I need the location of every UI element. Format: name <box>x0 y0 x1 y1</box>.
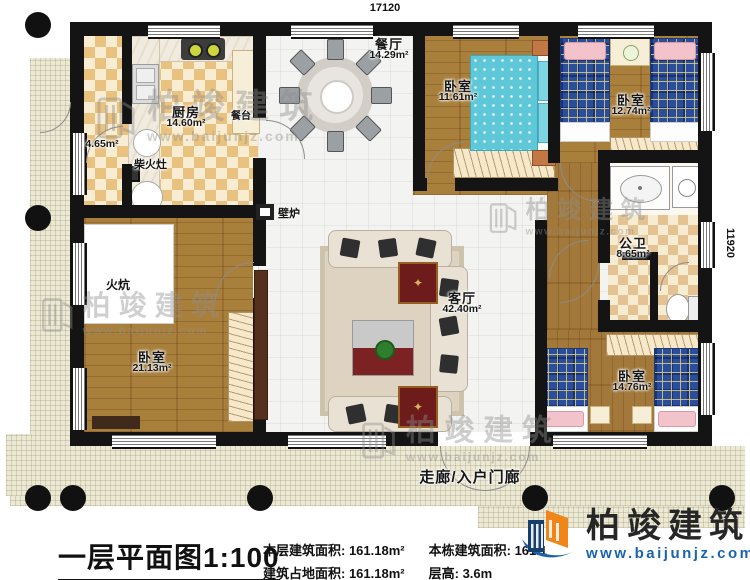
wall <box>455 178 558 191</box>
room-area-bedroom4: 14.76m² <box>612 381 651 393</box>
plan-title: 一层平面图1:100 <box>58 536 280 580</box>
label-kang: 火炕 <box>106 276 130 293</box>
dimension-top: 17120 <box>370 2 401 14</box>
window <box>71 243 87 305</box>
company-website: www.baijunjz.com <box>586 545 750 562</box>
wall <box>548 36 560 163</box>
column <box>247 485 273 511</box>
bed-pillow <box>658 411 696 427</box>
wall <box>598 150 712 163</box>
window <box>553 433 647 449</box>
label-firewood-stove: 柴火灶 <box>134 156 167 172</box>
wall <box>650 252 658 332</box>
floor-plan-canvas: 17120 11920 <box>0 0 750 580</box>
bed-pillow <box>564 42 606 60</box>
room-area-bedroom2: 12.74m² <box>611 105 650 117</box>
window <box>288 433 386 449</box>
fireplace-icon <box>256 204 274 220</box>
room-area-dining: 14.29m² <box>369 49 408 61</box>
double-bed <box>470 55 538 151</box>
stove-stool <box>133 129 161 157</box>
porch-step-left <box>6 434 32 496</box>
label-corridor: 走廊/入户门廊 <box>419 466 520 487</box>
dimension-right: 11920 <box>724 228 736 258</box>
room-area-bedroom1: 11.61m² <box>439 91 478 103</box>
label-serving-counter: 餐台 <box>231 107 251 122</box>
dining-chair <box>371 87 392 104</box>
stat-floor-area: 本层建筑面积: 161.18m² <box>263 540 405 559</box>
wall <box>122 164 132 205</box>
entrance-porch <box>10 446 745 506</box>
column <box>60 485 86 511</box>
dining-chair <box>327 131 344 152</box>
column <box>25 205 51 231</box>
dresser <box>92 416 140 429</box>
bed-foot <box>560 122 610 142</box>
bathroom-counter <box>610 166 670 210</box>
stat-footprint: 建筑占地面积: 161.18m² <box>263 563 405 580</box>
wall <box>253 36 266 118</box>
room-area-living: 42.40m² <box>442 303 481 315</box>
window <box>71 368 87 430</box>
wall <box>535 220 547 432</box>
nightstand <box>632 406 652 424</box>
room-area-bathroom: 8.65m² <box>616 248 649 260</box>
end-table: ✦ <box>398 262 438 304</box>
room-area-bedroom3: 21.13m² <box>132 362 171 374</box>
wall <box>413 36 425 178</box>
stove-icon <box>181 38 225 60</box>
entrance-opening <box>438 432 530 446</box>
window <box>699 53 715 131</box>
company-name: 柏竣建筑 <box>586 509 750 543</box>
dining-chair <box>279 87 300 104</box>
bed-pillow <box>544 411 584 427</box>
kang-platform <box>84 224 174 324</box>
end-table: ✦ <box>398 386 438 428</box>
wall <box>413 178 427 191</box>
room-area-storage: 4.65m² <box>85 138 118 150</box>
wall <box>122 36 132 124</box>
company-logo-icon <box>516 506 578 564</box>
room-area-kitchen: 14.60m² <box>166 117 205 129</box>
window <box>148 23 220 39</box>
window <box>112 433 216 449</box>
building-stats: 本层建筑面积: 161.18m² 本栋建筑面积: 161.1 建筑占地面积: 1… <box>263 540 547 580</box>
wall <box>548 150 558 163</box>
window <box>699 222 715 268</box>
wall <box>253 218 266 266</box>
wall <box>598 163 610 263</box>
window <box>578 23 654 39</box>
bed-foot <box>650 122 700 142</box>
coffee-table <box>352 320 414 376</box>
window <box>699 343 715 415</box>
company-logo: 柏竣建筑 www.baijunjz.com <box>516 506 750 564</box>
window <box>291 23 373 39</box>
nightstand <box>590 406 610 424</box>
nightstand <box>610 38 650 66</box>
kitchen-sink-icon <box>132 64 159 104</box>
twin-bed <box>654 348 700 408</box>
stat-storey-height: 层高: 3.6m <box>429 563 548 580</box>
dining-chair <box>327 39 344 60</box>
twin-bed <box>540 348 588 408</box>
bed-pillow <box>654 42 696 60</box>
wardrobe <box>228 312 255 422</box>
washing-machine-icon <box>672 166 700 208</box>
column <box>25 485 51 511</box>
wall <box>84 205 266 218</box>
column <box>25 12 51 38</box>
tv-cabinet <box>254 270 268 420</box>
label-fireplace: 壁炉 <box>278 205 300 221</box>
window <box>453 23 519 39</box>
